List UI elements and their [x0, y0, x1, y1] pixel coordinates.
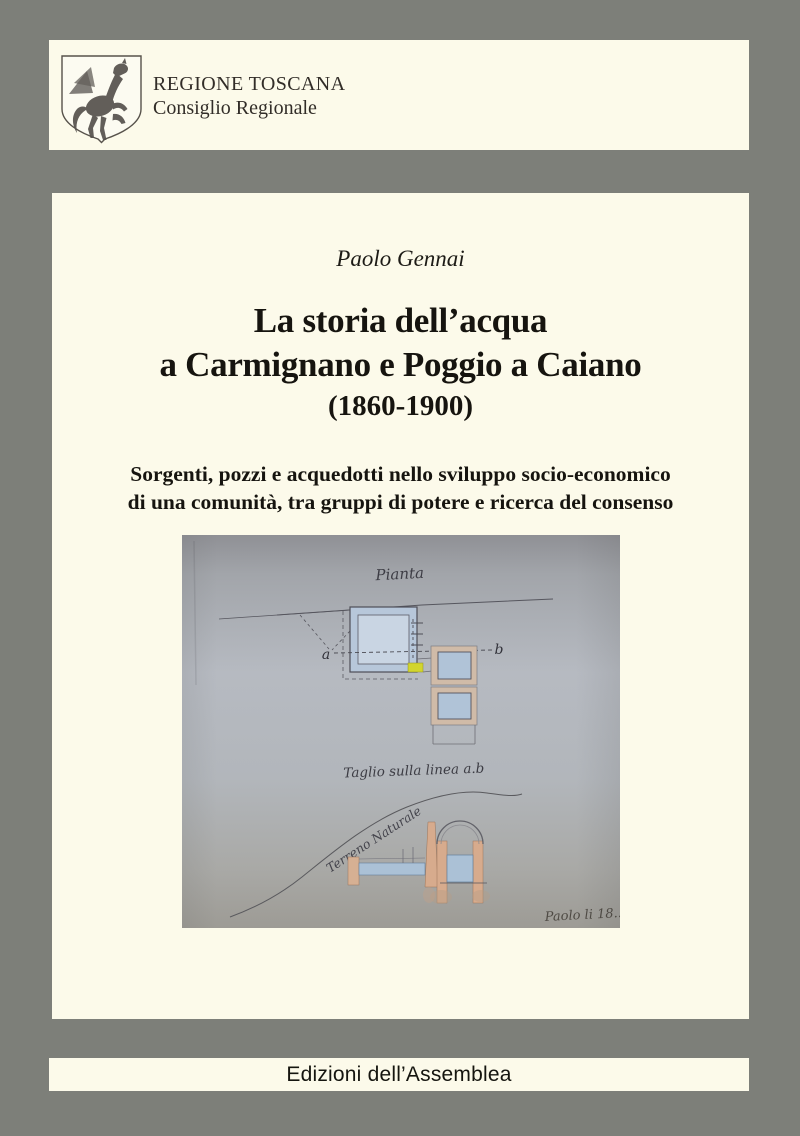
plan-label: Pianta	[374, 564, 424, 585]
cover-panel: Paolo Gennai La storia dell’acqua a Carm…	[52, 193, 749, 1019]
imprint: Edizioni dell’Assemblea	[286, 1063, 511, 1087]
pegasus-icon	[60, 54, 143, 144]
point-b-label: b	[495, 642, 504, 658]
book-cover-page: REGIONE TOSCANA Consiglio Regionale Paol…	[0, 0, 800, 1136]
point-a-label: a	[322, 647, 330, 663]
footer-band: Edizioni dell’Assemblea	[49, 1058, 749, 1091]
header-band: REGIONE TOSCANA Consiglio Regionale	[49, 40, 749, 150]
author-name: Paolo Gennai	[52, 246, 749, 272]
tuscany-coat-of-arms	[60, 54, 143, 144]
publisher-block: REGIONE TOSCANA Consiglio Regionale	[153, 72, 346, 121]
cover-illustration: Pianta a b	[182, 535, 620, 928]
historical-drawing-svg: Pianta a b	[182, 535, 620, 928]
region-title: REGIONE TOSCANA	[153, 72, 346, 96]
book-title-line1: La storia dell’acqua	[52, 301, 749, 341]
book-years: (1860-1900)	[52, 390, 749, 423]
council-subtitle: Consiglio Regionale	[153, 96, 346, 120]
subtitle-line1: Sorgenti, pozzi e acquedotti nello svilu…	[52, 462, 749, 487]
subtitle-line2: di una comunità, tra gruppi di potere e …	[52, 490, 749, 515]
book-title-line2: a Carmignano e Poggio a Caiano	[52, 345, 749, 385]
